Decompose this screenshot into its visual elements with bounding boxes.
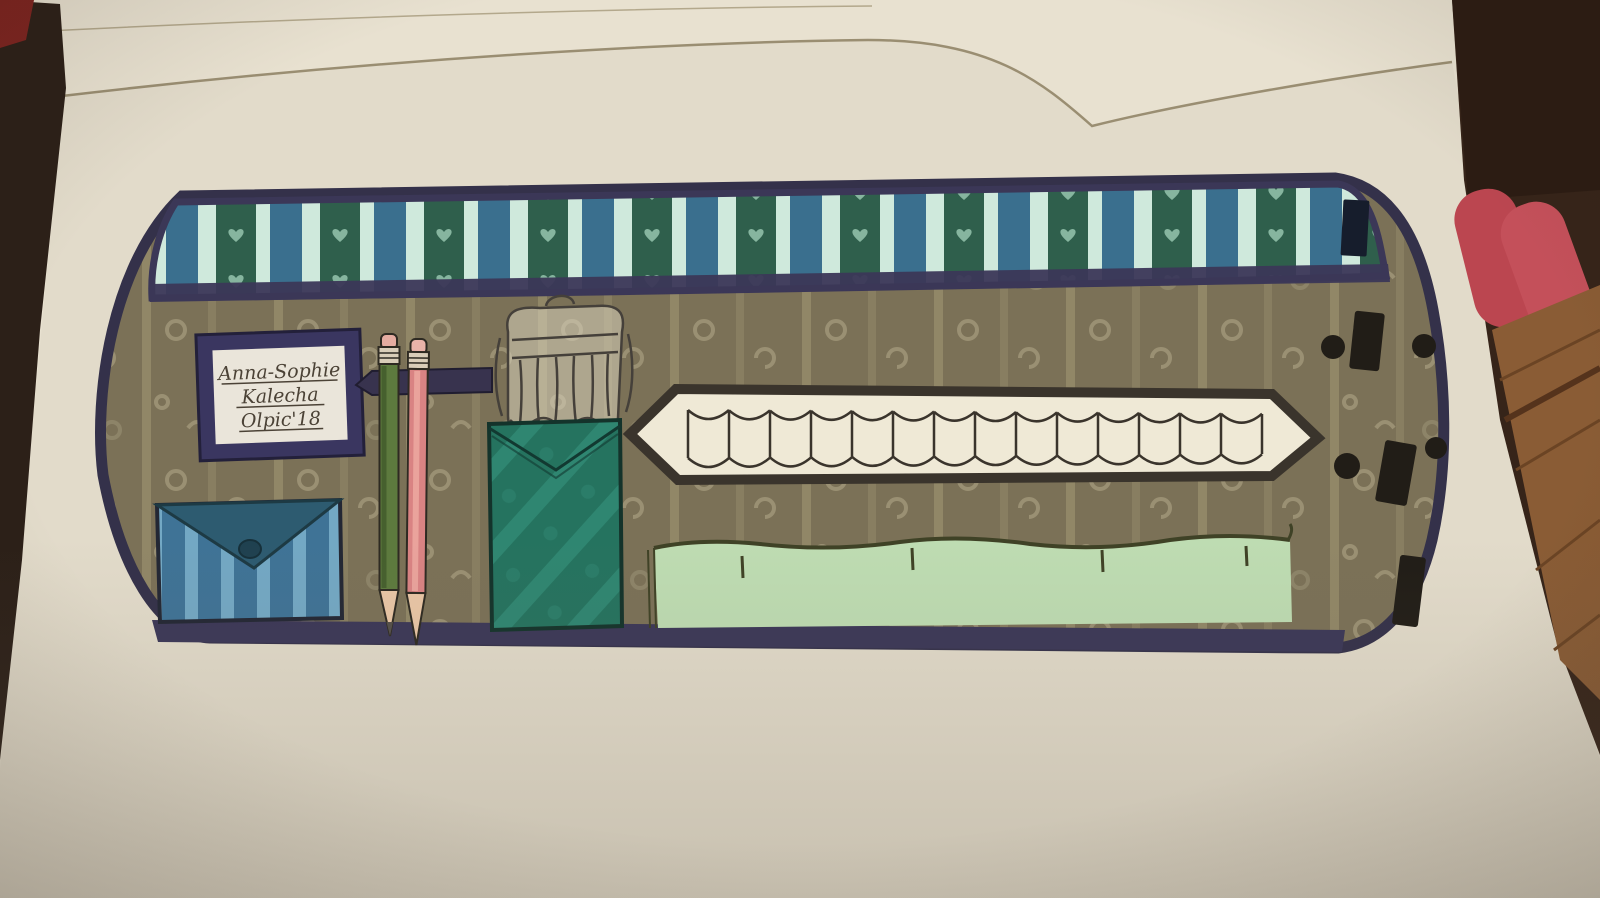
photo-canvas: Anna-Sophie Kalecha Olpic'18 [0, 0, 1600, 898]
vignette [0, 0, 1600, 898]
photo: Anna-Sophie Kalecha Olpic'18 [0, 0, 1600, 898]
